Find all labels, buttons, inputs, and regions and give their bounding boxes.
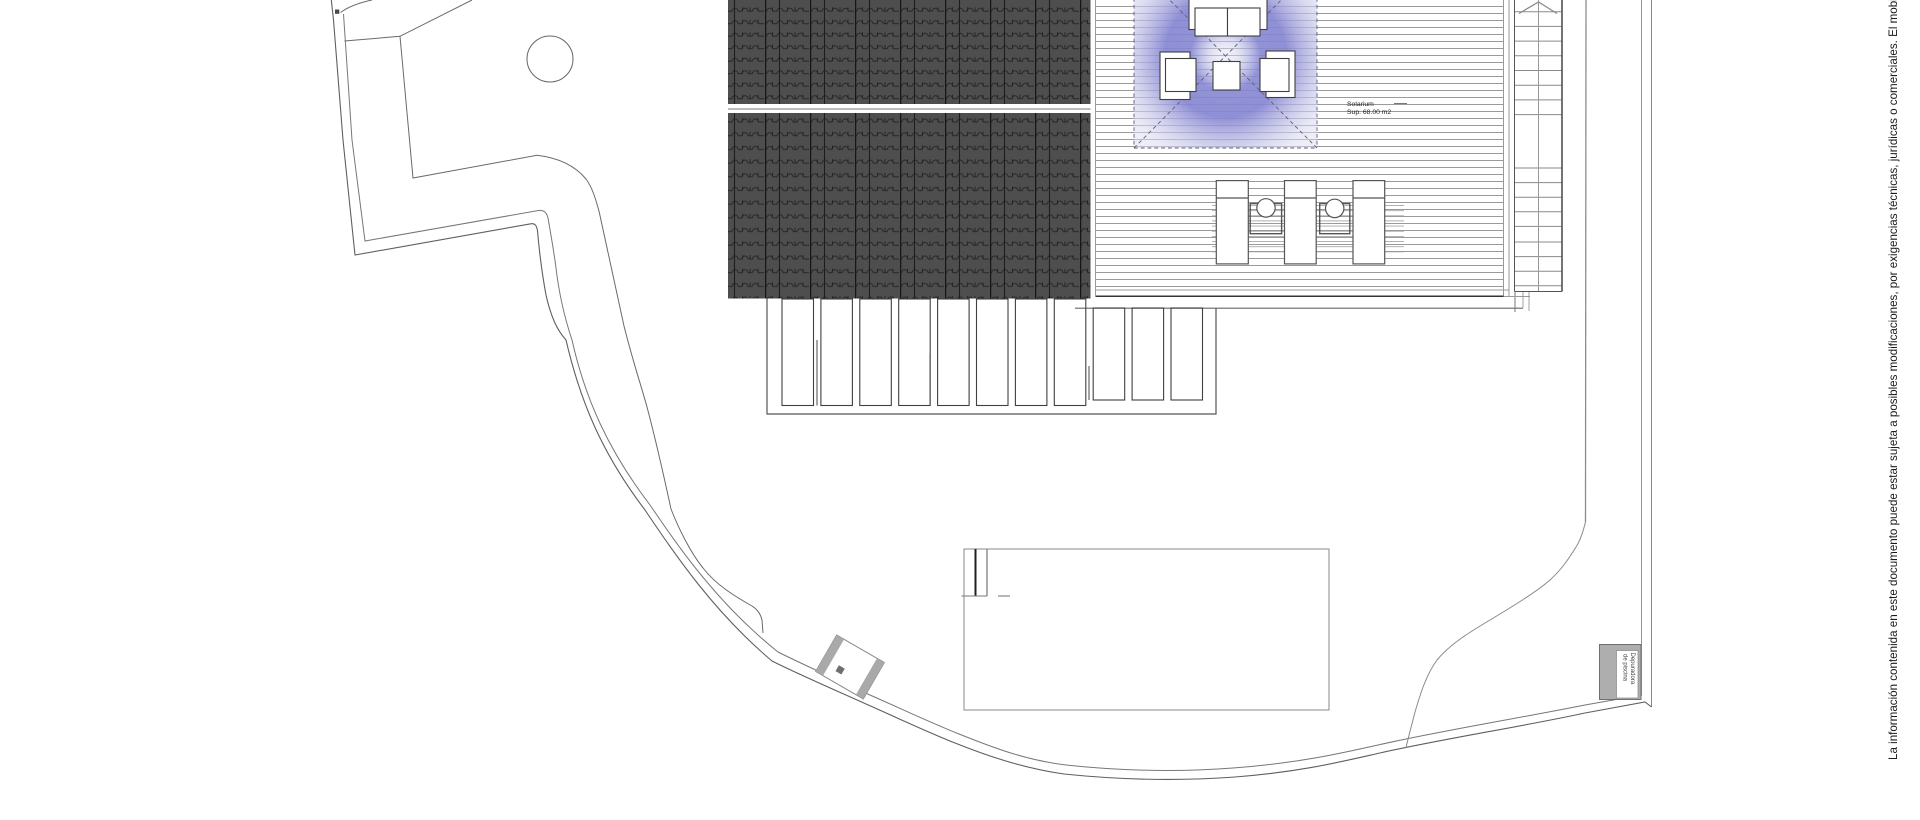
svg-text:de piscina: de piscina — [1622, 654, 1628, 682]
svg-text:Solarium: Solarium — [1347, 101, 1374, 108]
svg-text:Depuradora: Depuradora — [1629, 653, 1635, 685]
svg-text:Sup. 68.00 m2: Sup. 68.00 m2 — [1347, 109, 1391, 116]
svg-text:La información contenida en es: La información contenida en este documen… — [1887, 0, 1900, 760]
